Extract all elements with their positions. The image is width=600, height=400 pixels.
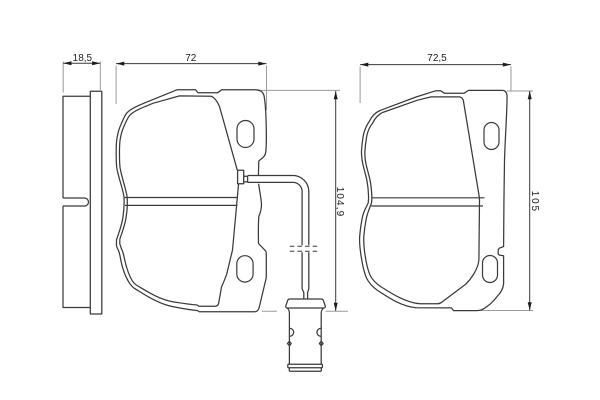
svg-text:72,5: 72,5 [427, 53, 447, 64]
svg-text:104,9: 104,9 [334, 187, 345, 218]
svg-text:18,5: 18,5 [73, 53, 93, 64]
svg-text:105: 105 [529, 191, 540, 213]
svg-text:72: 72 [185, 53, 197, 64]
